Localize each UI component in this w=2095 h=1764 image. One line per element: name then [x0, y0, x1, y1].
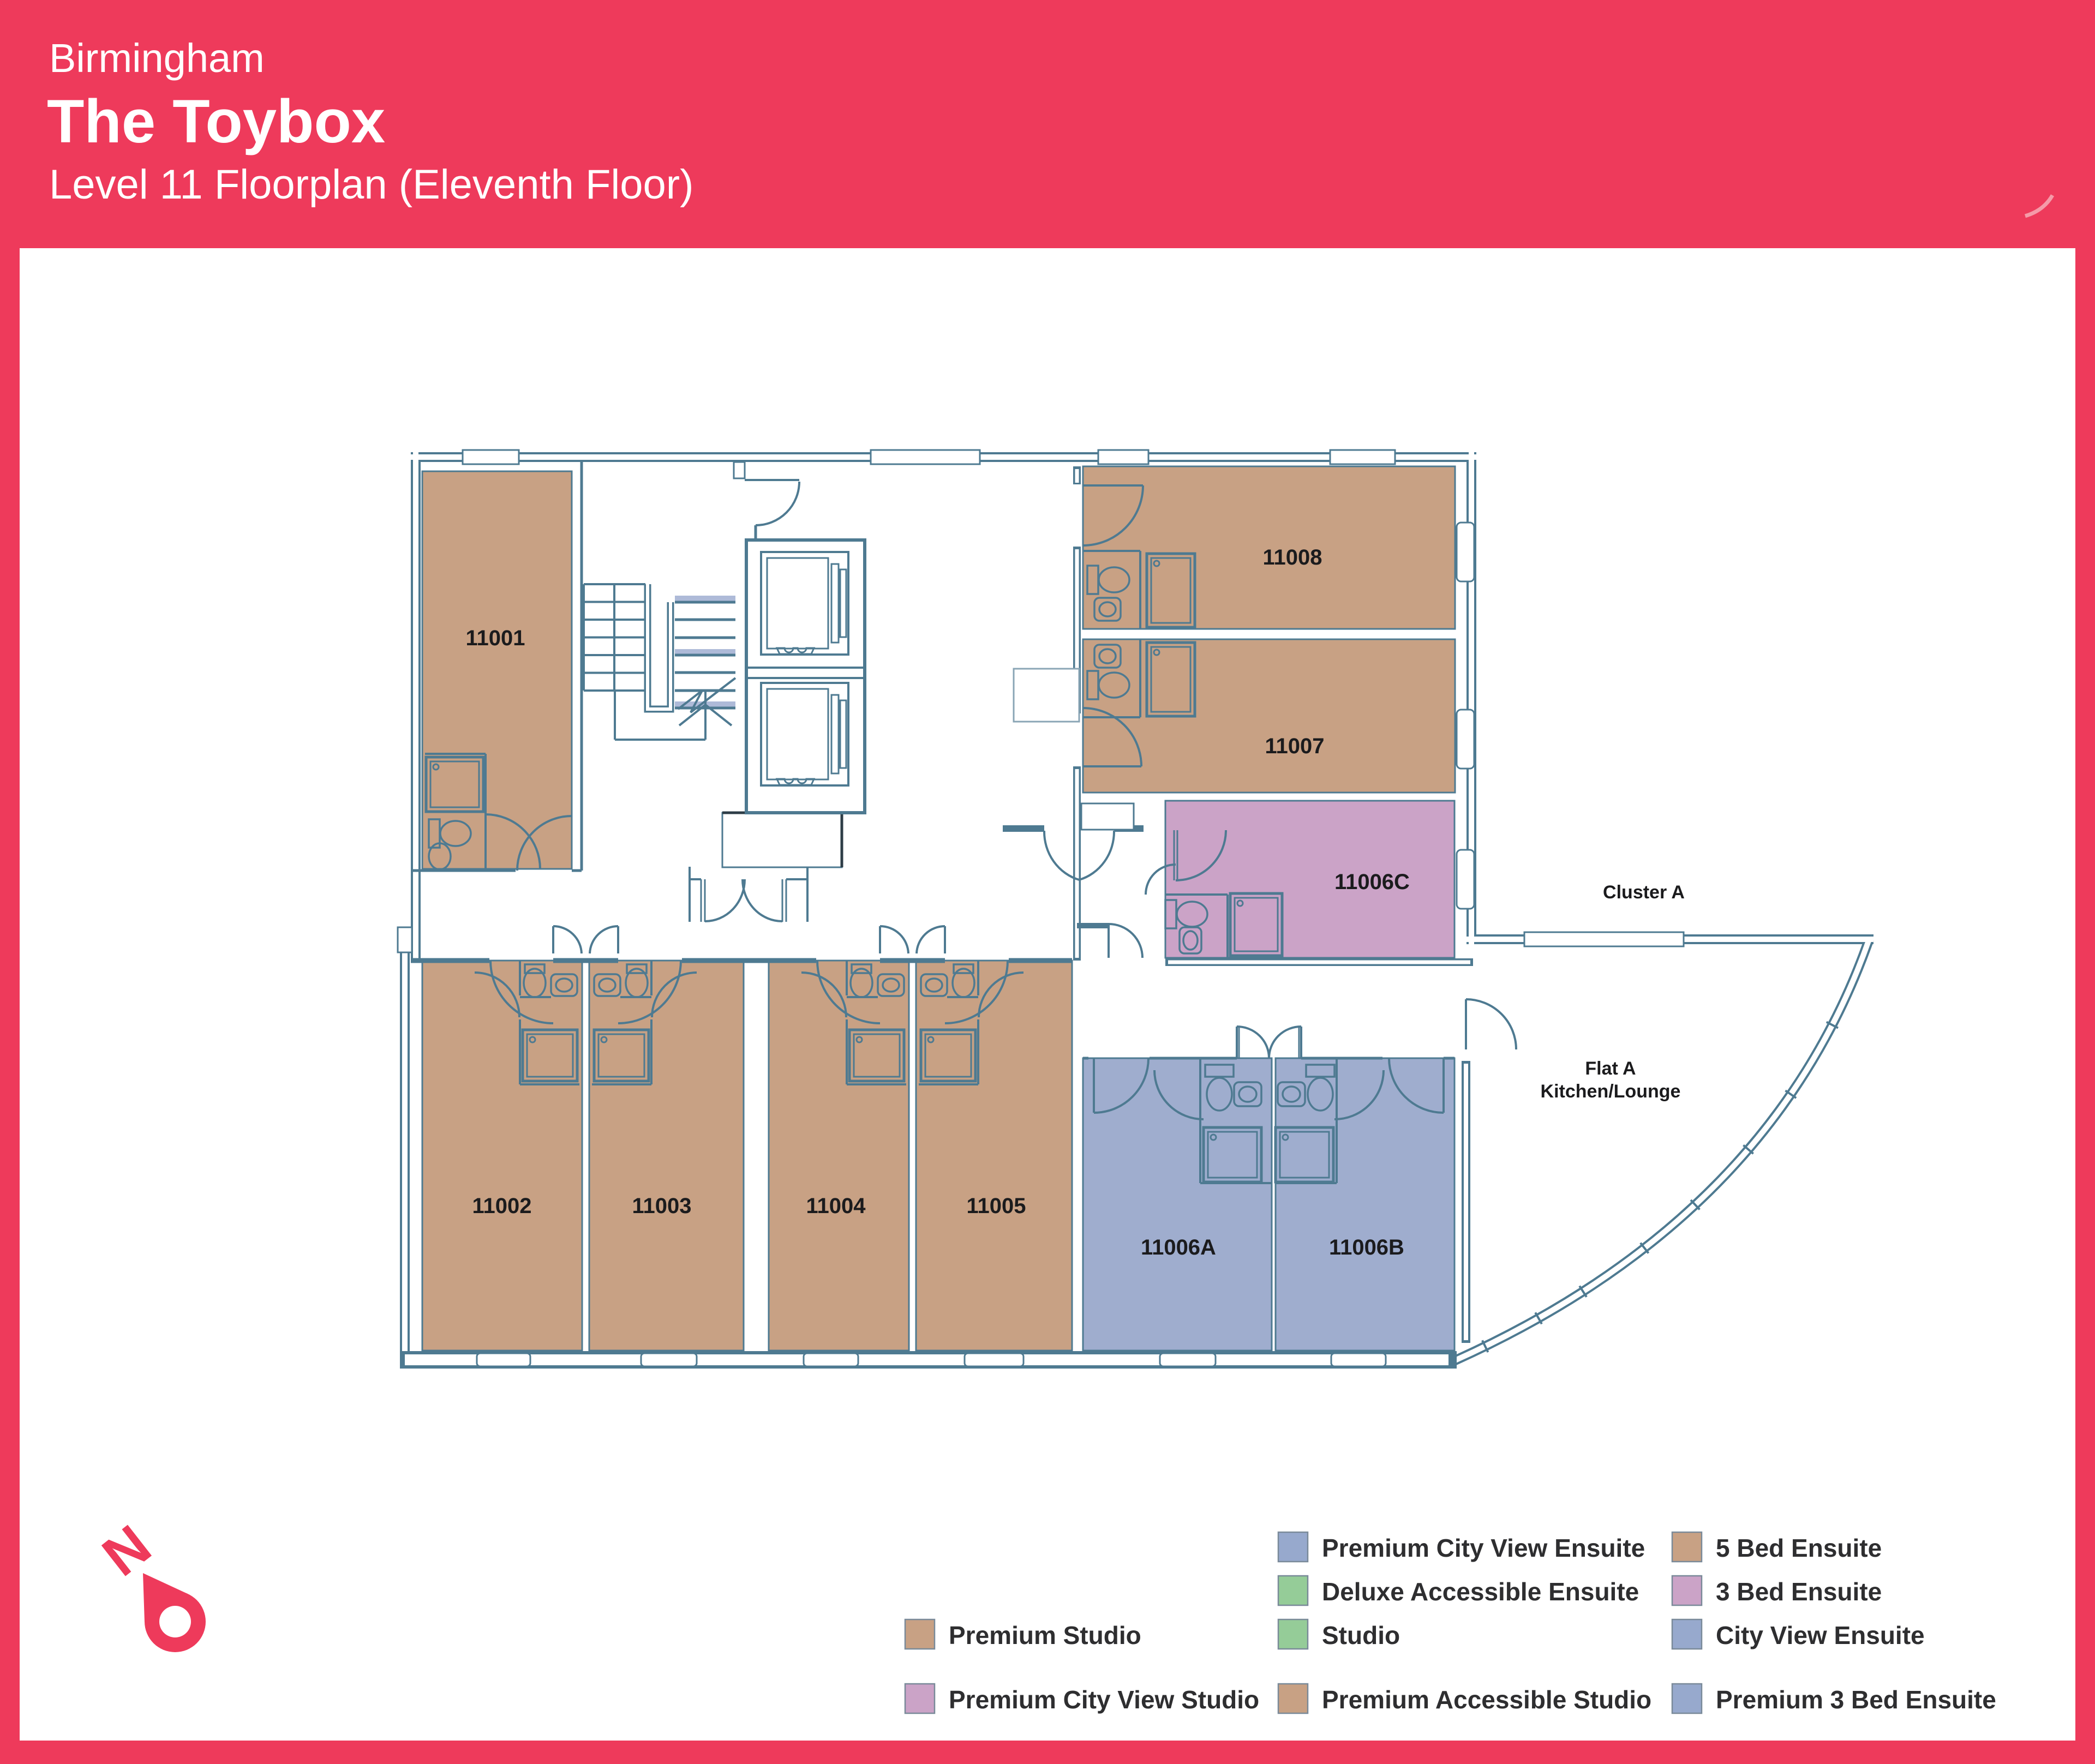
svg-text:Premium Accessible Studio: Premium Accessible Studio — [1322, 1685, 1651, 1714]
svg-text:Studio: Studio — [1322, 1621, 1400, 1649]
svg-text:Premium City View Studio: Premium City View Studio — [949, 1685, 1259, 1714]
svg-text:Deluxe Accessible Ensuite: Deluxe Accessible Ensuite — [1322, 1577, 1639, 1606]
svg-text:N: N — [91, 1513, 163, 1588]
svg-text:11004: 11004 — [806, 1194, 866, 1218]
svg-text:City View Ensuite: City View Ensuite — [1716, 1621, 1925, 1649]
svg-text:11007: 11007 — [1265, 734, 1324, 758]
svg-text:Cluster A: Cluster A — [1603, 882, 1685, 903]
svg-text:Premium Studio: Premium Studio — [949, 1621, 1141, 1649]
svg-text:Flat A: Flat A — [1585, 1058, 1636, 1079]
svg-text:Premium 3 Bed Ensuite: Premium 3 Bed Ensuite — [1716, 1685, 1996, 1714]
svg-text:5 Bed Ensuite: 5 Bed Ensuite — [1716, 1534, 1882, 1562]
svg-text:11006A: 11006A — [1141, 1235, 1216, 1259]
svg-text:11002: 11002 — [472, 1194, 531, 1218]
svg-text:Kitchen/Lounge: Kitchen/Lounge — [1541, 1081, 1681, 1102]
svg-text:11008: 11008 — [1262, 545, 1322, 569]
svg-text:Premium City View Ensuite: Premium City View Ensuite — [1322, 1534, 1645, 1562]
svg-text:11005: 11005 — [966, 1194, 1026, 1218]
svg-text:11001: 11001 — [465, 626, 525, 650]
svg-text:11003: 11003 — [632, 1194, 691, 1218]
svg-text:3 Bed Ensuite: 3 Bed Ensuite — [1716, 1577, 1882, 1606]
svg-text:11006B: 11006B — [1329, 1235, 1404, 1259]
svg-text:11006C: 11006C — [1334, 870, 1410, 894]
